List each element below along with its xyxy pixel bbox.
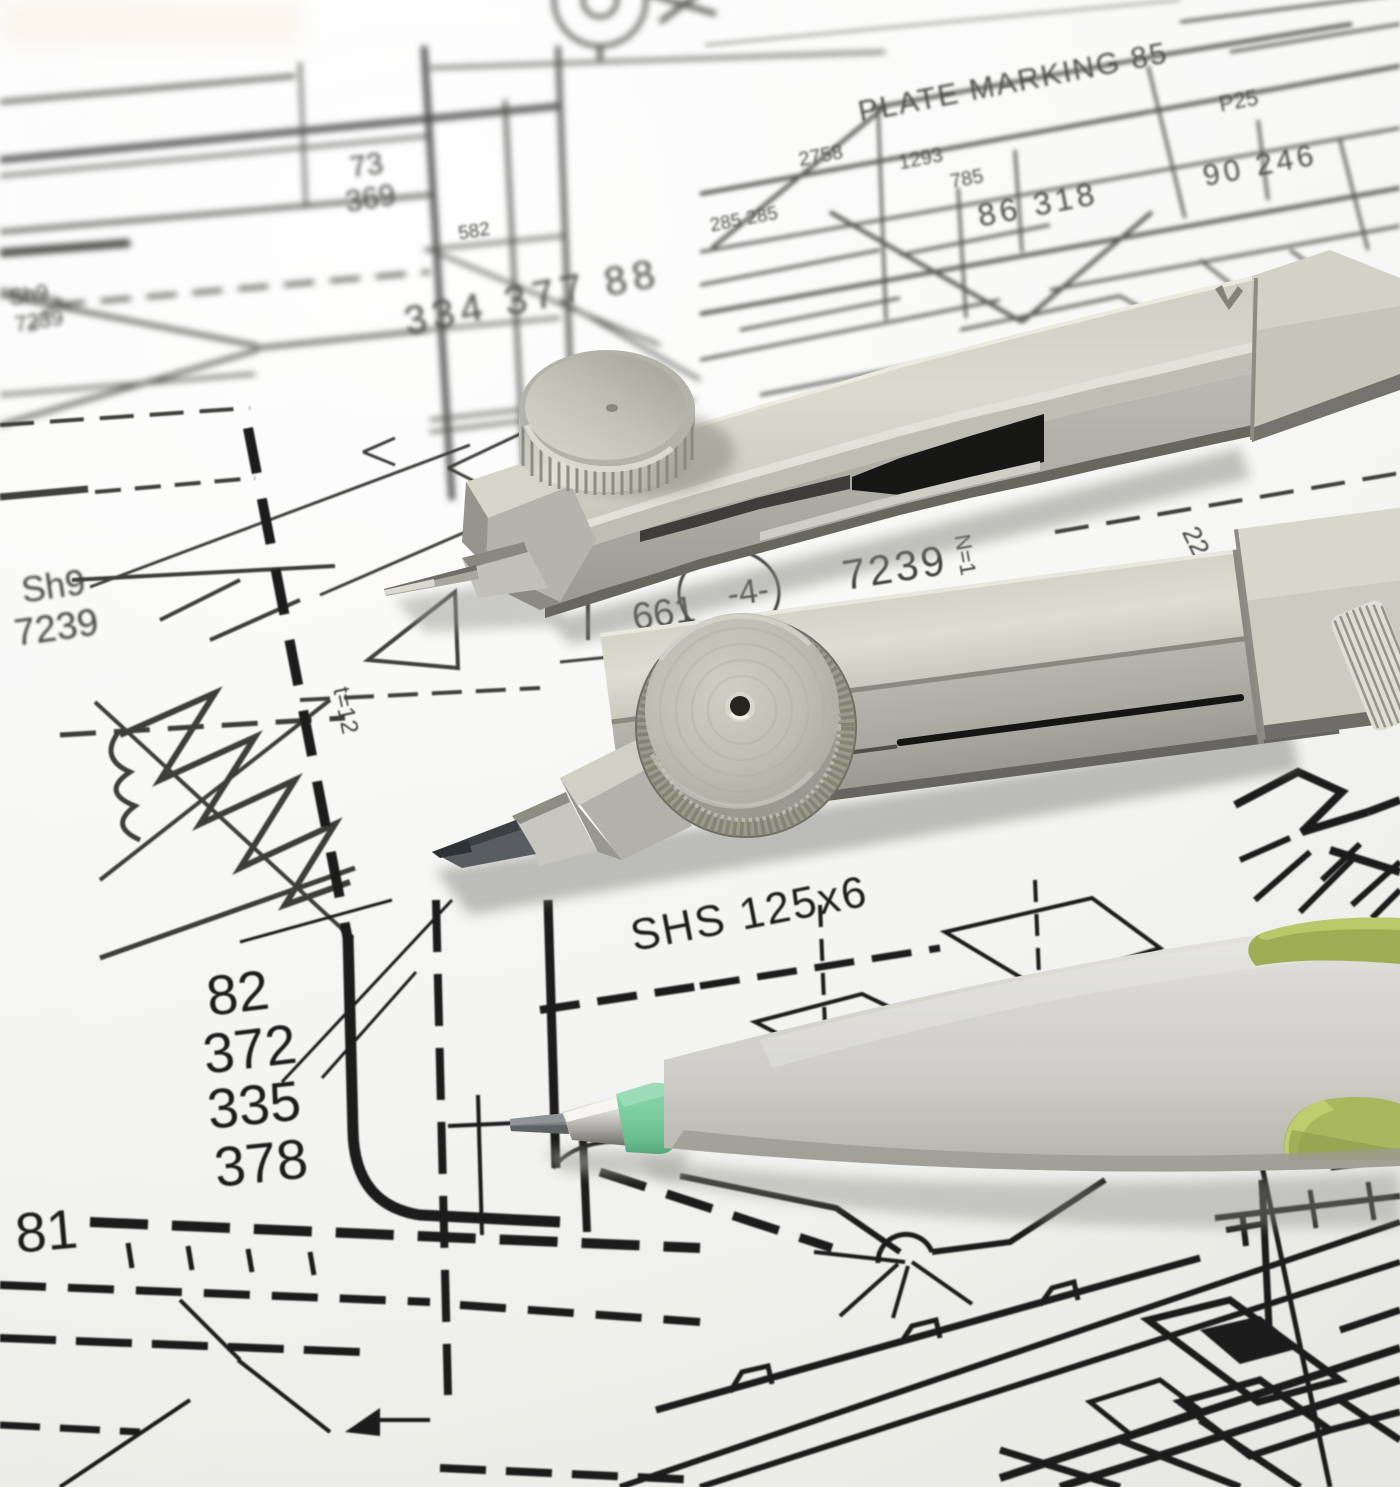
svg-text:378: 378 [211,1126,311,1198]
svg-text:73: 73 [347,147,385,185]
svg-text:81: 81 [13,1196,81,1264]
